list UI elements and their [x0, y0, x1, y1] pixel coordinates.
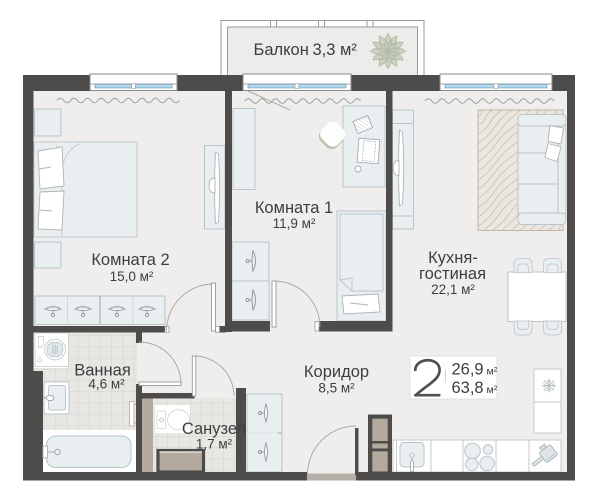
- svg-text:1,7 м²: 1,7 м²: [196, 437, 233, 452]
- svg-text:гостиная: гостиная: [419, 265, 486, 283]
- svg-text:22,1 м²: 22,1 м²: [431, 282, 475, 297]
- svg-text:Балкон: Балкон: [254, 41, 309, 59]
- svg-text:Санузел: Санузел: [182, 420, 246, 438]
- svg-text:8,5 м²: 8,5 м²: [318, 381, 355, 396]
- svg-text:3,3 м²: 3,3 м²: [313, 41, 358, 59]
- svg-text:4,6 м²: 4,6 м²: [88, 376, 125, 391]
- svg-text:Коридор: Коридор: [304, 363, 369, 381]
- svg-text:11,9 м²: 11,9 м²: [273, 216, 316, 231]
- svg-text:Комната 1: Комната 1: [255, 199, 333, 217]
- svg-text:Комната 2: Комната 2: [91, 251, 169, 269]
- svg-text:15,0 м²: 15,0 м²: [110, 269, 154, 284]
